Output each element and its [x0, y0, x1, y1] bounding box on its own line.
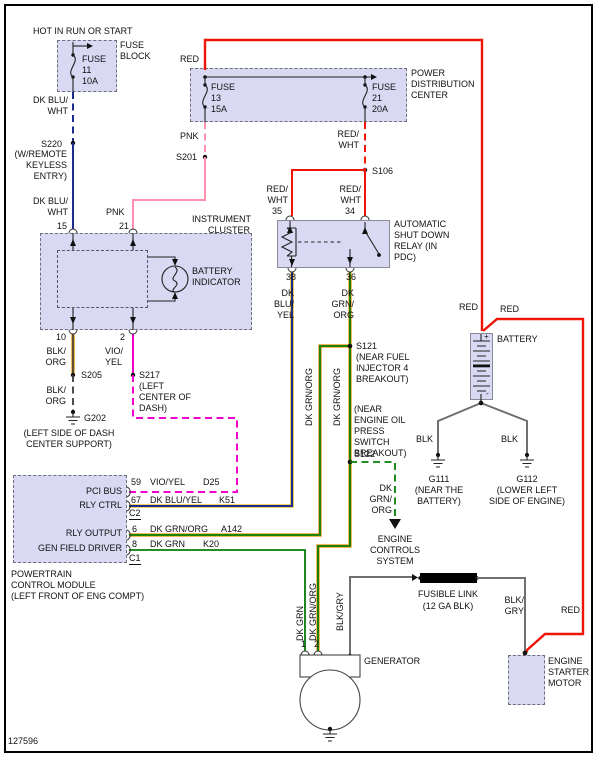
- wire-label-blk-left: BLK: [416, 434, 433, 445]
- battery-label: BATTERY: [497, 334, 538, 345]
- wire-label-dk-grn-org-rot2: DK GRN/ORG: [332, 368, 343, 426]
- wire-label-vio-yel-pcm: VIO/YEL: [150, 477, 185, 488]
- wire-label-red-bat-1: RED: [452, 302, 478, 313]
- wire-label-dk-grn-rot: DK GRN: [295, 606, 306, 641]
- battery-positive: +: [484, 332, 489, 342]
- doc-number: 127596: [8, 736, 38, 747]
- splice-s217-location: (LEFT CENTER OF DASH): [139, 381, 203, 414]
- cluster-pin21: 21: [119, 221, 129, 232]
- pcm-pin8: 8: [132, 539, 137, 550]
- fuse13-name: FUSE: [211, 82, 235, 93]
- splice-s121-location: (NEAR FUEL INJECTOR 4 BREAKOUT): [356, 352, 412, 385]
- starter-label: ENGINE STARTER MOTOR: [548, 656, 594, 689]
- wire-label-dk-grn-org-36: DK GRN/ ORG: [326, 288, 354, 321]
- wire-label-dk-grn-pcm: DK GRN: [150, 539, 185, 550]
- fuse-block-label: FUSE BLOCK: [120, 40, 156, 62]
- wire-label-red-bat-2: RED: [500, 304, 519, 315]
- wire-label-blk-org-1: BLK/ ORG: [40, 346, 66, 368]
- battery-indicator-label: BATTERY INDICATOR: [192, 266, 244, 288]
- hot-feed-label: HOT IN RUN OR START: [33, 26, 133, 37]
- cluster-pin15: 15: [57, 221, 67, 232]
- circuit-d25: D25: [203, 477, 220, 488]
- wire-label-blk-gry: BLK/ GRY: [498, 595, 524, 617]
- battery-box: [470, 333, 493, 400]
- wire-label-dk-grn-org-rot1: DK GRN/ORG: [304, 368, 315, 426]
- fuse21-rating: 20A: [372, 104, 388, 115]
- fuse13-rating: 15A: [211, 104, 227, 115]
- engine-controls-label: ENGINE CONTROLS SYSTEM: [364, 534, 426, 567]
- generator-pin1: 1: [301, 639, 306, 650]
- wire-label-red-wht-35: RED/ WHT: [258, 184, 288, 206]
- pcm-row-rly-ctrl: RLY CTRL: [60, 500, 122, 511]
- pcm-row-pci-bus: PCI BUS: [60, 486, 122, 497]
- circuit-k20: K20: [203, 539, 219, 550]
- relay-pin34: 34: [345, 206, 355, 217]
- relay-pin36: 36: [346, 272, 356, 283]
- wire-label-pnk-1: PNK: [180, 131, 199, 142]
- pcm-pin6: 6: [132, 524, 137, 535]
- wire-label-dk-blu-yel-38: DK BLU/ YEL: [266, 288, 294, 321]
- wire-label-blk-org-2: BLK/ ORG: [40, 385, 66, 407]
- fusible-link-spec: (12 GA BLK): [410, 601, 486, 612]
- wire-label-dk-grn-org-rot3: DK GRN/ORG: [308, 583, 319, 641]
- battery-negative: -: [486, 389, 489, 399]
- fuse11-rating: 10A: [82, 76, 98, 87]
- wire-label-vio-yel: VIO/ YEL: [105, 346, 131, 368]
- wire-label-dk-blu-yel-pcm: DK BLU/YEL: [150, 495, 202, 506]
- ground-g202-location: (LEFT SIDE OF DASH CENTER SUPPORT): [16, 428, 122, 450]
- splice-s201-label: S201: [170, 152, 197, 163]
- pcm-connector-c2: C2: [129, 508, 141, 520]
- splice-s220-location: (W/REMOTE KEYLESS ENTRY): [14, 149, 67, 182]
- fuse21-number: 21: [372, 93, 382, 104]
- ground-g111-location: (NEAR THE BATTERY): [408, 485, 470, 507]
- pcm-location: (LEFT FRONT OF ENG COMPT): [11, 591, 144, 602]
- ground-g112-location: (LOWER LEFT SIDE OF ENGINE): [486, 485, 568, 507]
- fuse11-name: FUSE: [82, 54, 106, 65]
- asd-relay-box: [277, 220, 390, 268]
- splice-s121-label: S121: [356, 341, 377, 352]
- circuit-k51: K51: [219, 495, 235, 506]
- wire-label-red-wht-34: RED/ WHT: [331, 184, 361, 206]
- wire-label-dk-grn-org-pcm: DK GRN/ORG: [150, 524, 208, 535]
- circuit-a142: A142: [221, 524, 242, 535]
- wire-label-red-1: RED: [180, 54, 199, 65]
- ground-g112-label: G112: [502, 474, 552, 485]
- wire-label-blk-right: BLK: [501, 434, 518, 445]
- wire-label-dk-blu-wht-2: DK BLU/ WHT: [30, 196, 68, 218]
- pcm-connector-c1: C1: [129, 553, 141, 565]
- fuse13-number: 13: [211, 93, 221, 104]
- cluster-label: INSTRUMENT CLUSTER: [192, 214, 250, 236]
- instrument-cluster-inner-box: [57, 250, 148, 308]
- cluster-pin2: 2: [120, 332, 125, 343]
- splice-s205-label: S205: [81, 370, 102, 381]
- relay-pin38: 38: [286, 272, 296, 283]
- relay-pin35: 35: [272, 206, 282, 217]
- wire-label-red-wht-f21: RED/ WHT: [333, 129, 359, 151]
- relay-label: AUTOMATIC SHUT DOWN RELAY (IN PDC): [394, 219, 452, 263]
- fuse11-number: 11: [82, 65, 91, 76]
- wire-label-dk-blu-wht-1: DK BLU/ WHT: [30, 95, 68, 117]
- pdc-label: POWER DISTRIBUTION CENTER: [411, 68, 477, 101]
- generator-label: GENERATOR: [364, 656, 420, 667]
- wire-label-blk-gry-rot: BLK/GRY: [335, 592, 346, 631]
- splice-s106-label: S106: [372, 166, 393, 177]
- starter-motor-box: [508, 655, 545, 705]
- fuse21-name: FUSE: [372, 82, 396, 93]
- generator-pin2: 2: [314, 639, 319, 650]
- pcm-row-gen-field: GEN FIELD DRIVER: [24, 543, 122, 554]
- pcm-label: POWERTRAIN CONTROL MODULE: [11, 569, 115, 591]
- pcm-row-rly-output: RLY OUTPUT: [50, 528, 122, 539]
- wire-label-dk-grn-org-ec: DK GRN/ ORG: [364, 483, 392, 516]
- pcm-pin59: 59: [131, 477, 141, 488]
- fusible-link-label: FUSIBLE LINK: [410, 589, 486, 600]
- wire-label-red-starter: RED: [561, 605, 580, 616]
- pcm-pin67: 67: [131, 495, 141, 506]
- wire-label-pnk-2: PNK: [106, 207, 125, 218]
- splice-s122-label: S122: [354, 449, 375, 460]
- wiring-diagram: HOT IN RUN OR START FUSE BLOCK FUSE 11 1…: [0, 0, 600, 773]
- ground-g111-label: G111: [414, 474, 464, 485]
- ground-g202-label: G202: [84, 413, 106, 424]
- splice-s217-label: S217: [139, 370, 160, 381]
- cluster-pin10: 10: [56, 332, 66, 343]
